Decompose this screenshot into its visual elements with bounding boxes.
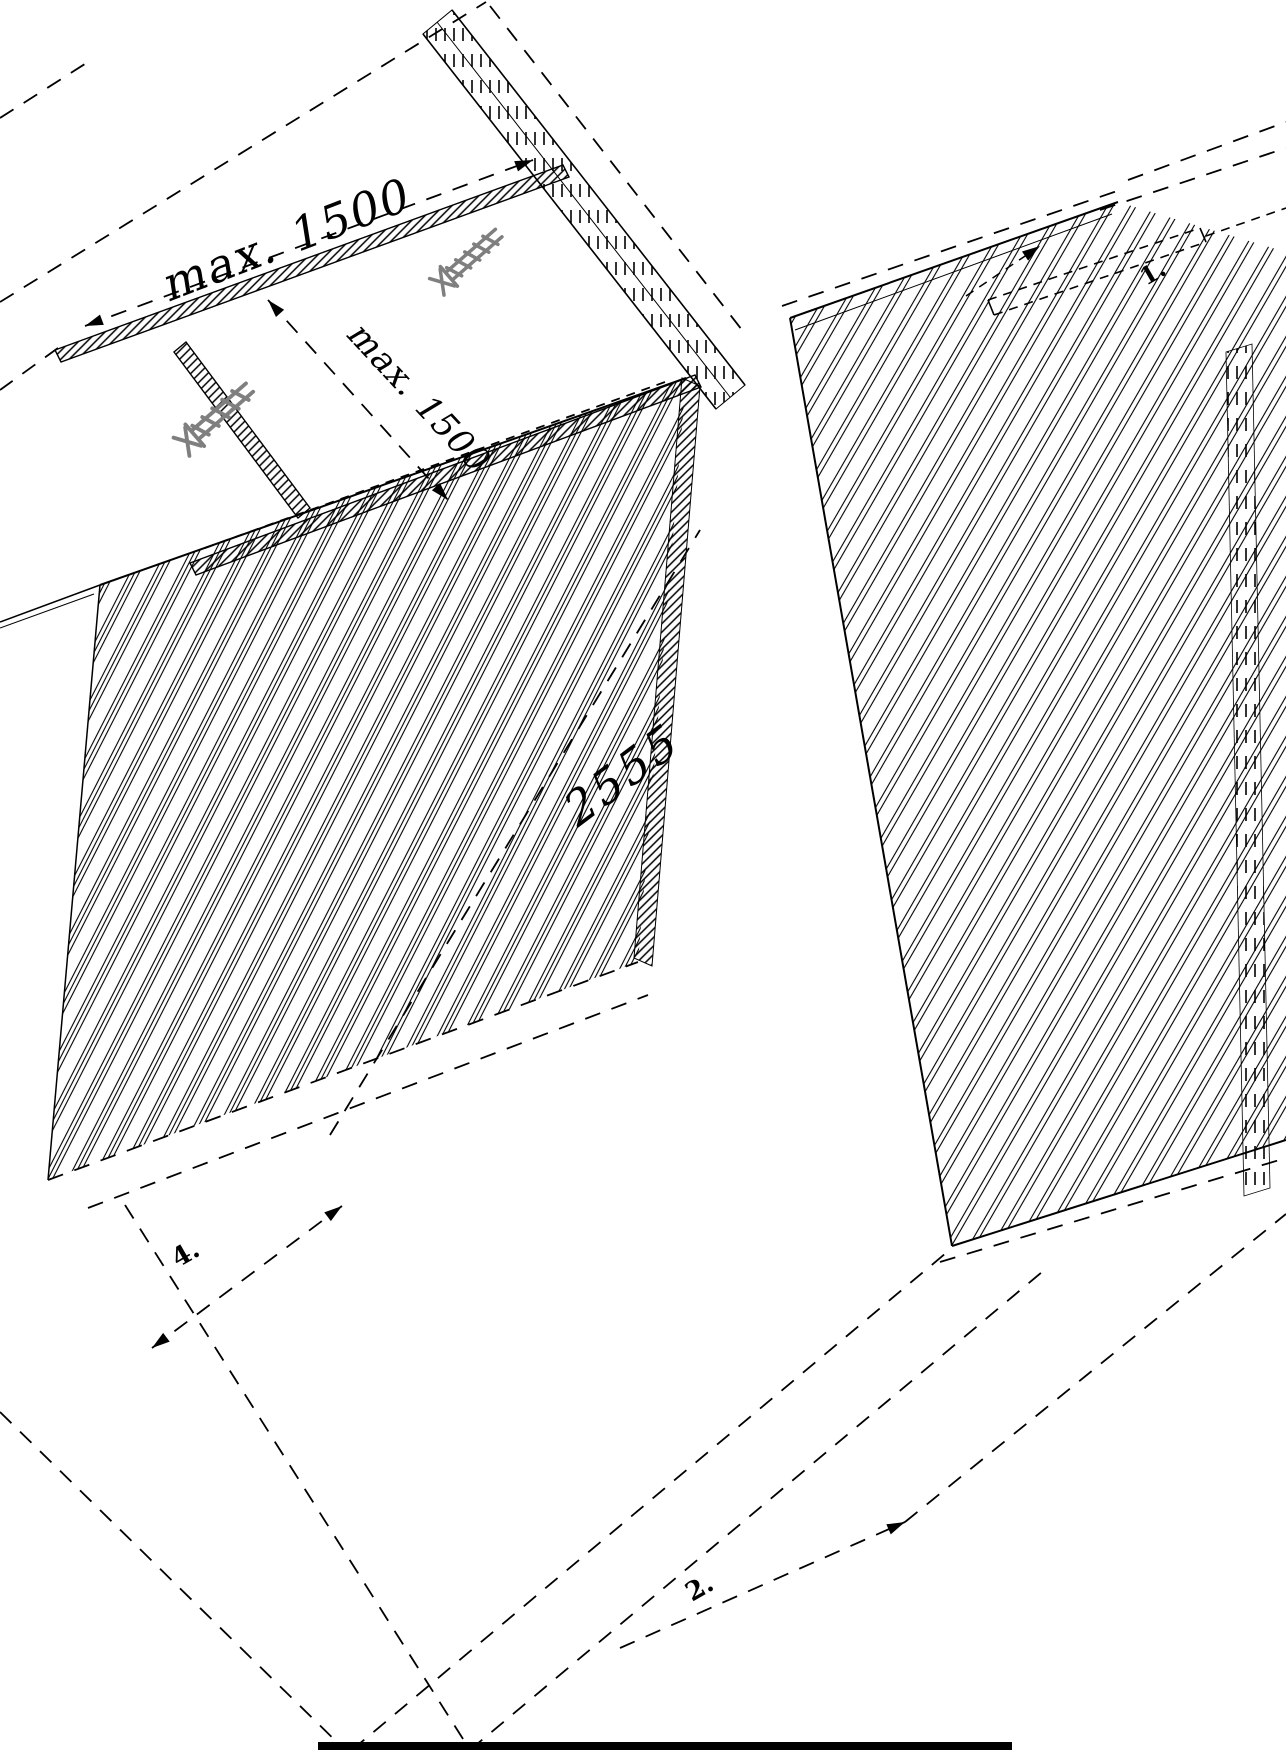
floor-lines — [0, 1205, 1286, 1750]
drawing-canvas: max. 1500 max. 1500 2555 — [0, 0, 1286, 1750]
step-label-4: 4. — [167, 1235, 206, 1275]
hidden-edge-line — [1100, 148, 1286, 210]
dimension-arrowheads-bottom — [149, 1202, 908, 1535]
hidden-edge-line — [0, 348, 58, 390]
wall-panel-left: 2555 — [0, 378, 700, 1208]
arrowhead — [83, 315, 104, 332]
hidden-edge-line — [125, 1205, 470, 1750]
hidden-edge-line — [0, 1412, 345, 1750]
edge-line — [423, 34, 716, 409]
hidden-edge-line — [352, 1248, 952, 1750]
assembly-diagram: max. 1500 max. 1500 2555 — [0, 0, 1286, 1750]
arrowhead — [324, 1202, 345, 1222]
hidden-edge-line — [1128, 122, 1286, 180]
wall-left-edge — [0, 594, 94, 628]
arrowhead — [886, 1517, 907, 1534]
hidden-edge-line — [620, 1522, 905, 1648]
bottom-border-bar — [318, 1742, 1012, 1750]
arrowhead — [149, 1333, 170, 1353]
wall-panel-right: 1. — [782, 122, 1286, 1262]
wall-right-hatch — [790, 202, 1286, 1246]
step-label-2: 2. — [681, 1569, 720, 1609]
batten-top — [55, 165, 569, 362]
screw-icon — [428, 223, 507, 296]
hidden-edge-line — [0, 62, 88, 118]
wall-left-edge — [0, 585, 100, 622]
arrowhead — [264, 296, 284, 317]
hidden-edge-line — [905, 1214, 1286, 1522]
dimension-line-bottom — [152, 1206, 342, 1348]
hidden-edge-line — [470, 1272, 1042, 1750]
